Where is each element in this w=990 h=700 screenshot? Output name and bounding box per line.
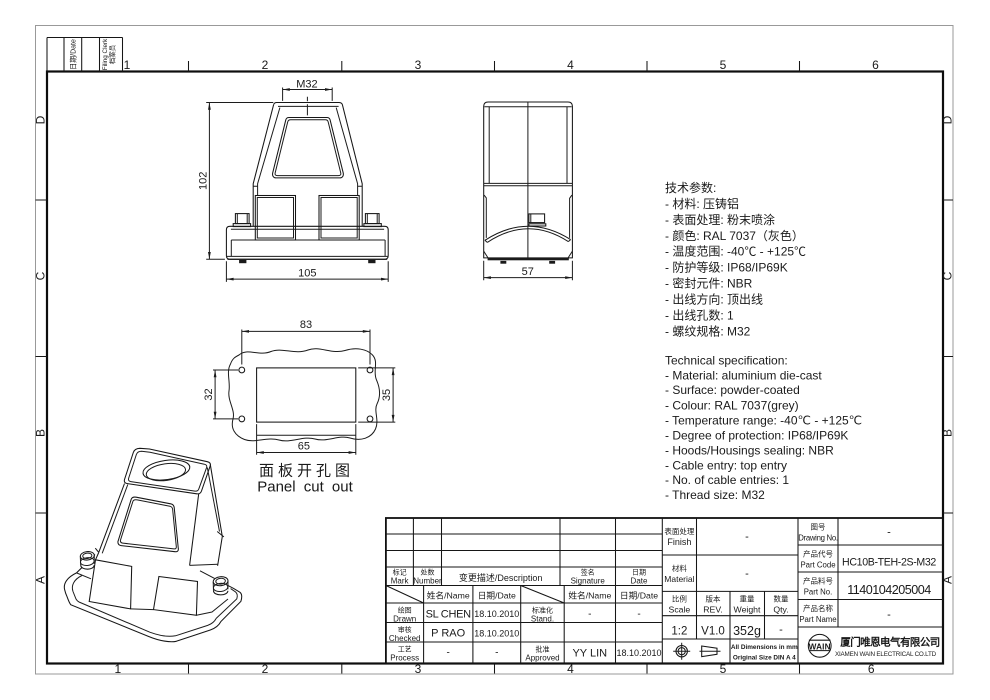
- svg-text:面板开孔图: 面板开孔图: [259, 462, 354, 480]
- svg-text:重量: 重量: [740, 595, 755, 604]
- svg-text:32: 32: [203, 388, 215, 400]
- svg-text:C: C: [941, 271, 955, 280]
- svg-text:- 螺纹规格: M32: - 螺纹规格: M32: [665, 324, 751, 339]
- svg-text:D: D: [34, 115, 48, 124]
- svg-text:- No. of cable entries: 1: - No. of cable entries: 1: [665, 473, 789, 487]
- svg-text:产品代号: 产品代号: [803, 549, 833, 559]
- svg-text:Part Code: Part Code: [800, 561, 835, 570]
- svg-text:1: 1: [114, 662, 121, 676]
- svg-text:处数: 处数: [421, 568, 435, 577]
- svg-text:Number: Number: [413, 577, 442, 586]
- svg-text:-: -: [637, 609, 640, 620]
- svg-text:Material: Material: [664, 574, 694, 584]
- svg-text:日期: 日期: [632, 569, 646, 577]
- svg-text:图号: 图号: [811, 523, 826, 532]
- svg-text:-: -: [745, 531, 749, 543]
- svg-text:B: B: [34, 429, 48, 437]
- svg-text:Date: Date: [631, 577, 648, 586]
- svg-text:- 表面处理: 粉末喷涂: - 表面处理: 粉末喷涂: [665, 212, 775, 227]
- svg-text:- Cable entry: top entry: - Cable entry: top entry: [665, 458, 787, 472]
- svg-text:2: 2: [262, 662, 269, 676]
- svg-text:1: 1: [124, 58, 131, 72]
- svg-text:Filing Clerk: Filing Clerk: [102, 38, 109, 70]
- svg-text:P RAO: P RAO: [431, 628, 465, 640]
- svg-text:Drawing No.: Drawing No.: [798, 534, 838, 543]
- svg-text:SL CHEN: SL CHEN: [426, 609, 472, 621]
- svg-text:-: -: [887, 609, 891, 621]
- svg-text:105: 105: [298, 267, 316, 279]
- svg-text:产品料号: 产品料号: [803, 576, 833, 586]
- svg-text:- 密封元件: NBR: - 密封元件: NBR: [665, 276, 753, 291]
- svg-text:版本: 版本: [706, 594, 721, 604]
- svg-text:Drawn: Drawn: [393, 615, 416, 624]
- svg-text:厦门唯恩电气有限公司: 厦门唯恩电气有限公司: [840, 636, 940, 649]
- svg-text:数量: 数量: [774, 594, 789, 604]
- svg-text:18.10.2010: 18.10.2010: [474, 629, 519, 639]
- svg-text:变更描述/Description: 变更描述/Description: [459, 572, 543, 583]
- svg-text:REV.: REV.: [703, 605, 722, 615]
- svg-text:日期/Date: 日期/Date: [620, 591, 658, 601]
- svg-text:Approved: Approved: [525, 654, 559, 663]
- svg-text:-: -: [495, 648, 498, 659]
- svg-text:Technical specification:: Technical specification:: [665, 353, 788, 367]
- svg-text:批准: 批准: [536, 645, 550, 654]
- svg-text:XIAMEN WAIN ELECTRICAL CO.LTD: XIAMEN WAIN ELECTRICAL CO.LTD: [835, 651, 937, 658]
- svg-text:M32: M32: [296, 79, 317, 91]
- svg-text:Panel cut out: Panel cut out: [257, 479, 353, 496]
- svg-text:- Colour: RAL 7037(grey): - Colour: RAL 7037(grey): [665, 399, 799, 413]
- svg-text:352g: 352g: [733, 624, 761, 638]
- svg-text:- 防护等级: IP68/IP69K: - 防护等级: IP68/IP69K: [665, 260, 788, 275]
- svg-text:- Temperature range: -40℃ - +1: - Temperature range: -40℃ - +125℃: [665, 414, 862, 428]
- svg-text:HC10B-TEH-2S-M32: HC10B-TEH-2S-M32: [842, 557, 936, 569]
- svg-text:6: 6: [872, 58, 879, 72]
- svg-text:日期/Date: 日期/Date: [70, 39, 78, 70]
- svg-text:WAIN: WAIN: [809, 642, 831, 651]
- svg-text:1140104205004: 1140104205004: [847, 583, 931, 597]
- svg-text:V1.0: V1.0: [701, 626, 725, 638]
- svg-text:表面处理: 表面处理: [664, 526, 694, 536]
- svg-text:姓名/Name: 姓名/Name: [568, 590, 611, 601]
- svg-text:-: -: [447, 648, 450, 659]
- svg-text:Weight: Weight: [734, 605, 761, 615]
- svg-text:- 颜色: RAL 7037（灰色）: - 颜色: RAL 7037（灰色）: [665, 228, 804, 243]
- svg-text:All Dimensions in mm: All Dimensions in mm: [731, 644, 798, 651]
- svg-text:65: 65: [298, 441, 310, 453]
- svg-text:4: 4: [567, 58, 574, 72]
- svg-text:工艺: 工艺: [398, 646, 412, 654]
- svg-text:产品名称: 产品名称: [803, 603, 833, 613]
- svg-text:Process: Process: [390, 654, 419, 663]
- svg-text:- 出线方向: 顶出线: - 出线方向: 顶出线: [665, 292, 763, 307]
- svg-text:-: -: [588, 609, 591, 620]
- svg-text:标记: 标记: [393, 568, 407, 577]
- svg-text:-: -: [745, 568, 749, 580]
- svg-text:- 材料: 压铸铝: - 材料: 压铸铝: [665, 196, 739, 211]
- svg-text:Finish: Finish: [667, 537, 691, 547]
- svg-text:Checked: Checked: [389, 634, 421, 643]
- svg-text:比例: 比例: [672, 594, 687, 604]
- svg-text:Part No.: Part No.: [804, 588, 833, 597]
- svg-text:姓名/Name: 姓名/Name: [427, 590, 470, 601]
- svg-text:- 出线孔数: 1: - 出线孔数: 1: [665, 308, 734, 323]
- svg-text:- Thread size: M32: - Thread size: M32: [665, 488, 765, 502]
- svg-text:材料: 材料: [672, 563, 687, 573]
- svg-text:3: 3: [415, 58, 422, 72]
- svg-text:标准化: 标准化: [532, 606, 553, 615]
- svg-text:签名: 签名: [581, 568, 595, 577]
- svg-text:83: 83: [300, 319, 312, 331]
- svg-text:Qty.: Qty.: [773, 605, 788, 615]
- svg-text:-: -: [779, 624, 783, 636]
- svg-text:- Degree of protection: IP68/I: - Degree of protection: IP68/IP69K: [665, 428, 848, 442]
- svg-text:B: B: [941, 429, 955, 437]
- svg-text:A: A: [34, 576, 48, 584]
- svg-text:1:2: 1:2: [671, 626, 687, 638]
- svg-text:-: -: [887, 527, 891, 539]
- svg-text:57: 57: [522, 266, 534, 278]
- svg-text:YY LIN: YY LIN: [572, 648, 607, 660]
- svg-text:35: 35: [381, 389, 393, 401]
- svg-text:审核: 审核: [398, 625, 412, 634]
- svg-text:Signature: Signature: [571, 577, 606, 586]
- svg-text:Scale: Scale: [669, 605, 691, 615]
- svg-text:2: 2: [262, 58, 269, 72]
- svg-text:18.10.2010: 18.10.2010: [616, 648, 661, 658]
- svg-text:日期/Date: 日期/Date: [478, 591, 516, 601]
- svg-text:Original Size DIN A 4: Original Size DIN A 4: [733, 655, 796, 662]
- svg-text:Part Name: Part Name: [799, 615, 836, 624]
- svg-text:- 温度范围: -40℃ - +125℃: - 温度范围: -40℃ - +125℃: [665, 243, 806, 258]
- svg-text:绘图: 绘图: [398, 606, 412, 615]
- svg-text:- Surface: powder-coated: - Surface: powder-coated: [665, 383, 800, 397]
- svg-text:102: 102: [198, 172, 210, 190]
- svg-text:5: 5: [720, 58, 727, 72]
- svg-text:- Material: aluminium die-cast: - Material: aluminium die-cast: [665, 369, 822, 383]
- svg-text:Stand.: Stand.: [531, 615, 554, 624]
- svg-text:18.10.2010: 18.10.2010: [474, 609, 519, 619]
- svg-text:C: C: [34, 271, 48, 280]
- svg-text:D: D: [941, 115, 955, 124]
- svg-text:Mark: Mark: [391, 577, 410, 586]
- svg-text:- Hoods/Housings sealing: NBR: - Hoods/Housings sealing: NBR: [665, 443, 834, 457]
- svg-text:技术参数:: 技术参数:: [665, 180, 716, 195]
